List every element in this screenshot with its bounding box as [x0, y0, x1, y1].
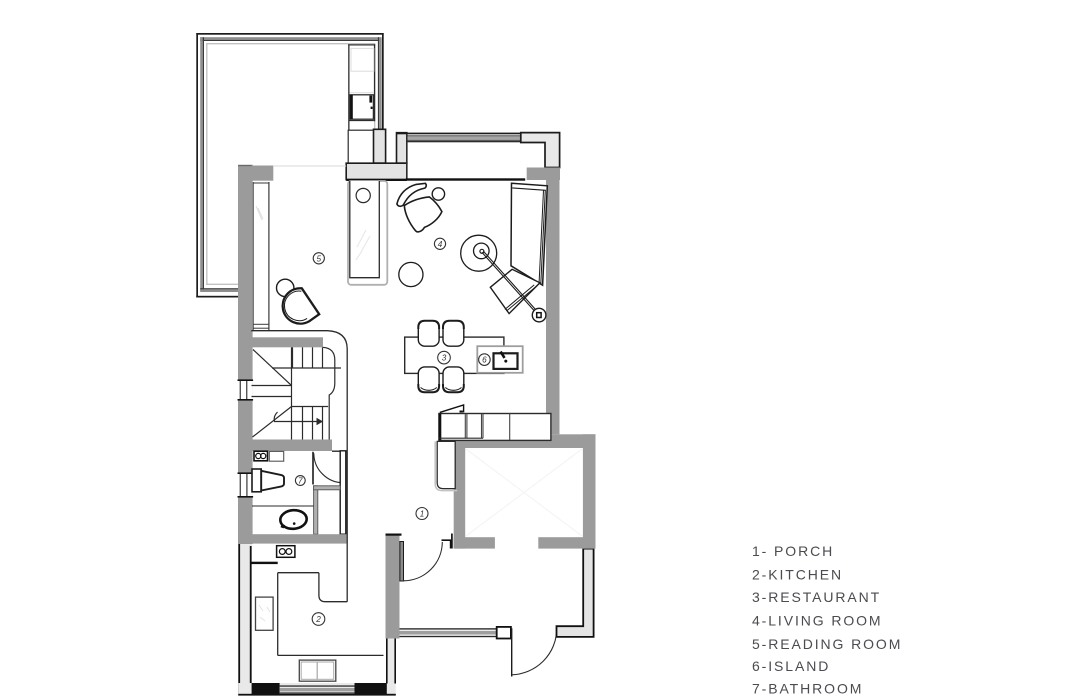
- svg-text:3-RESTAURANT: 3-RESTAURANT: [752, 589, 881, 605]
- svg-text:5-READING ROOM: 5-READING ROOM: [752, 636, 902, 652]
- svg-text:6: 6: [482, 356, 487, 365]
- svg-text:7: 7: [298, 477, 303, 486]
- svg-text:6-ISLAND: 6-ISLAND: [752, 658, 830, 674]
- svg-text:7-BATHROOM: 7-BATHROOM: [752, 681, 863, 697]
- svg-text:4-LIVING ROOM: 4-LIVING ROOM: [752, 613, 883, 629]
- svg-text:2: 2: [315, 615, 321, 624]
- svg-text:1: 1: [420, 510, 425, 519]
- svg-text:4: 4: [438, 240, 443, 249]
- svg-text:1- PORCH: 1- PORCH: [752, 543, 834, 559]
- svg-text:5: 5: [317, 254, 322, 263]
- svg-text:2-KITCHEN: 2-KITCHEN: [752, 567, 843, 583]
- svg-text:3: 3: [442, 354, 447, 363]
